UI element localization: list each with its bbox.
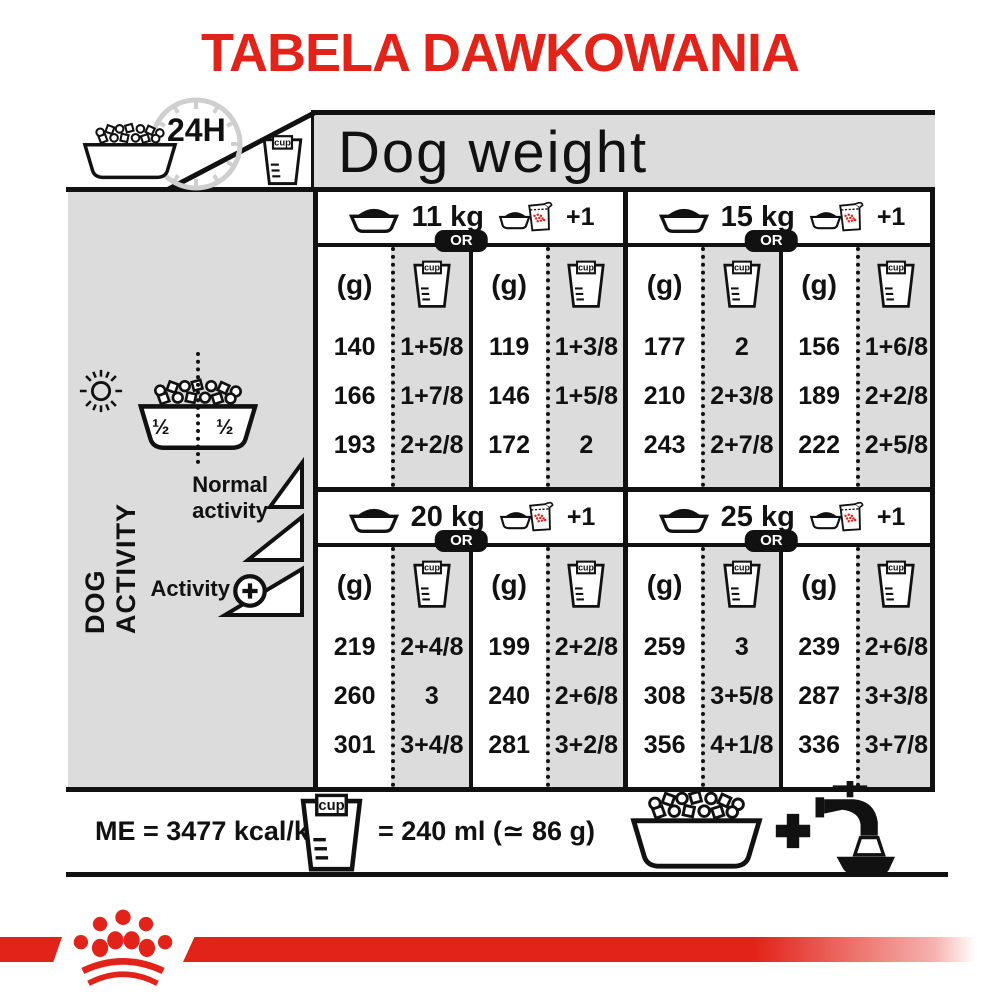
grams-value: 210 (628, 372, 701, 421)
grams-value: 146 (473, 372, 546, 421)
page-title: TABELA DAWKOWANIA (0, 22, 1000, 84)
cup-value: 2+2/8 (860, 372, 933, 421)
grams-value: 140 (318, 323, 391, 372)
grams-header: (g) (783, 547, 856, 623)
grams-header: (g) (473, 247, 546, 323)
section-columns: (g) 140 166 193 1+5/8 1+7/8 2+2/8 (g) 11… (318, 247, 623, 487)
measuring-cup-icon (874, 259, 918, 311)
grams-column: (g) 140 166 193 (318, 247, 391, 487)
weight-section-25kg: 25 kg +1 OR (g) 259 308 356 3 3+5/8 4+1/… (628, 492, 933, 787)
grams-value: 281 (473, 721, 546, 770)
or-badge: OR (435, 530, 488, 552)
cup-value: 3+4/8 (395, 721, 468, 770)
cup-column: 3 3+5/8 4+1/8 (701, 547, 778, 787)
section-columns: (g) 177 210 243 2 2+3/8 2+7/8 (g) 156 18… (628, 247, 933, 487)
dry-food-bowl-icon (656, 503, 712, 533)
cup-value: 2+2/8 (395, 421, 468, 470)
plus-one-label: +1 (877, 203, 906, 232)
cup-value: 3 (705, 623, 778, 672)
grams-header: (g) (318, 547, 391, 623)
plus-circle-icon (231, 572, 269, 610)
grams-value: 356 (628, 721, 701, 770)
cup-value: 2 (705, 323, 778, 372)
cup-value: 4+1/8 (705, 721, 778, 770)
measuring-cup-icon (564, 559, 608, 611)
grams-column: (g) 259 308 356 (628, 547, 701, 787)
cup-header (705, 247, 778, 323)
cup-header (860, 247, 933, 323)
grams-value: 301 (318, 721, 391, 770)
royal-canin-crown-logo (56, 898, 190, 996)
half-right-label: ½ (216, 416, 234, 440)
water-tap-icon (804, 778, 896, 876)
cup-value: 1+5/8 (395, 323, 468, 372)
cup-header (550, 547, 623, 623)
measuring-cup-icon (564, 259, 608, 311)
measuring-cup-icon (720, 259, 764, 311)
cup-header (395, 247, 468, 323)
grams-value: 243 (628, 421, 701, 470)
bowl-plus-sachet-icon (497, 193, 557, 243)
weight-section-15kg: 15 kg +1 OR (g) 177 210 243 2 2+3/8 2+7/… (628, 192, 933, 487)
bowl-plus-sachet-icon (808, 493, 868, 543)
measuring-cup-icon (720, 559, 764, 611)
cup-header (860, 547, 933, 623)
grams-value: 219 (318, 623, 391, 672)
section-header: 20 kg +1 OR (318, 492, 623, 547)
section-header: 11 kg +1 OR (318, 192, 623, 247)
cup-value: 2+6/8 (550, 672, 623, 721)
grams-value: 240 (473, 672, 546, 721)
grams-value: 336 (783, 721, 856, 770)
cup-header (550, 247, 623, 323)
cup-value: 2+3/8 (705, 372, 778, 421)
measuring-cup-icon (410, 259, 454, 311)
dog-activity-sidebar: ½ ½ DOG ACTIVITY Normal activity Activit… (68, 192, 313, 787)
cup-value: 1+7/8 (395, 372, 468, 421)
bowl-plus-sachet-icon (808, 193, 868, 243)
cup-value: 2+2/8 (550, 623, 623, 672)
section-columns: (g) 219 260 301 2+4/8 3 3+4/8 (g) 199 24… (318, 547, 623, 787)
grams-header: (g) (318, 247, 391, 323)
cup-value: 1+3/8 (550, 323, 623, 372)
brand-stripe (183, 937, 1000, 962)
cup-value: 3+7/8 (860, 721, 933, 770)
grams-value: 177 (628, 323, 701, 372)
measuring-cup-icon (294, 792, 369, 876)
or-badge: OR (745, 230, 798, 252)
divider (930, 187, 935, 792)
cup-value: 3+5/8 (705, 672, 778, 721)
grams-column-with-sachet: (g) 239 287 336 (779, 547, 856, 787)
grams-value: 156 (783, 323, 856, 372)
grams-header: (g) (473, 547, 546, 623)
grams-column-with-sachet: (g) 119 146 172 (469, 247, 546, 487)
dog-weight-label: Dog weight (338, 119, 648, 186)
grams-value: 287 (783, 672, 856, 721)
cup-value: 3+2/8 (550, 721, 623, 770)
grams-value: 199 (473, 623, 546, 672)
divider (623, 187, 628, 792)
grams-header: (g) (628, 547, 701, 623)
section-columns: (g) 259 308 356 3 3+5/8 4+1/8 (g) 239 28… (628, 547, 933, 787)
cup-column-with-sachet: 1+6/8 2+2/8 2+5/8 (856, 247, 933, 487)
cup-value: 2+7/8 (705, 421, 778, 470)
grams-value: 308 (628, 672, 701, 721)
food-bowl-icon (624, 782, 769, 874)
cup-header (705, 547, 778, 623)
sun-icon (78, 368, 124, 414)
grams-value: 239 (783, 623, 856, 672)
cup-column-with-sachet: 1+3/8 1+5/8 2 (546, 247, 623, 487)
metabolizable-energy-label: ME = 3477 kcal/kg (95, 816, 325, 847)
grams-column-with-sachet: (g) 199 240 281 (469, 547, 546, 787)
bowl-plus-sachet-icon (498, 493, 558, 543)
plus-one-label: +1 (877, 503, 906, 532)
cup-value: 2+5/8 (860, 421, 933, 470)
cup-column-with-sachet: 2+2/8 2+6/8 3+2/8 (546, 547, 623, 787)
grams-value: 172 (473, 421, 546, 470)
food-bowl-icon (78, 112, 182, 188)
cup-value: 1+5/8 (550, 372, 623, 421)
grams-column: (g) 177 210 243 (628, 247, 701, 487)
half-split-dotted-line (196, 352, 200, 464)
feeding-guide-page: cup (0, 0, 1000, 1000)
grams-value: 189 (783, 372, 856, 421)
cup-value: 3 (395, 672, 468, 721)
dry-food-bowl-icon (346, 203, 402, 233)
weight-section-20kg: 20 kg +1 OR (g) 219 260 301 2+4/8 3 3+4/… (318, 492, 623, 787)
cup-header (395, 547, 468, 623)
section-header: 25 kg +1 OR (628, 492, 933, 547)
grams-value: 259 (628, 623, 701, 672)
or-badge: OR (745, 530, 798, 552)
grams-value: 193 (318, 421, 391, 470)
cup-column: 1+5/8 1+7/8 2+2/8 (391, 247, 468, 487)
grams-column: (g) 219 260 301 (318, 547, 391, 787)
activity-label: Activity (118, 576, 230, 602)
weight-section-11kg: 11 kg +1 OR (g) 140 166 193 1+5/8 1+7/8 … (318, 192, 623, 487)
measuring-cup-icon (874, 559, 918, 611)
grams-value: 119 (473, 323, 546, 372)
half-left-label: ½ (152, 416, 170, 440)
grams-value: 222 (783, 421, 856, 470)
plus-one-label: +1 (567, 503, 596, 532)
cup-value: 2 (550, 421, 623, 470)
or-badge: OR (435, 230, 488, 252)
cup-equivalence-label: = 240 ml (≃ 86 g) (378, 816, 595, 847)
dog-weight-header: Dog weight (311, 110, 935, 188)
brand-stripe (0, 937, 62, 962)
divider (313, 187, 318, 792)
dry-food-bowl-icon (656, 203, 712, 233)
cup-column: 2 2+3/8 2+7/8 (701, 247, 778, 487)
section-header: 15 kg +1 OR (628, 192, 933, 247)
cup-column-with-sachet: 2+6/8 3+3/8 3+7/8 (856, 547, 933, 787)
grams-header: (g) (628, 247, 701, 323)
grams-header: (g) (783, 247, 856, 323)
grams-column-with-sachet: (g) 156 189 222 (779, 247, 856, 487)
cup-value: 2+6/8 (860, 623, 933, 672)
plus-one-label: +1 (566, 203, 595, 232)
moon-icon (266, 368, 296, 404)
dry-food-bowl-icon (346, 503, 402, 533)
cup-value: 3+3/8 (860, 672, 933, 721)
cup-value: 1+6/8 (860, 323, 933, 372)
measuring-cup-icon (410, 559, 454, 611)
cup-value: 2+4/8 (395, 623, 468, 672)
measuring-cup-icon (259, 134, 306, 188)
cup-column: 2+4/8 3 3+4/8 (391, 547, 468, 787)
grams-value: 166 (318, 372, 391, 421)
grams-value: 260 (318, 672, 391, 721)
